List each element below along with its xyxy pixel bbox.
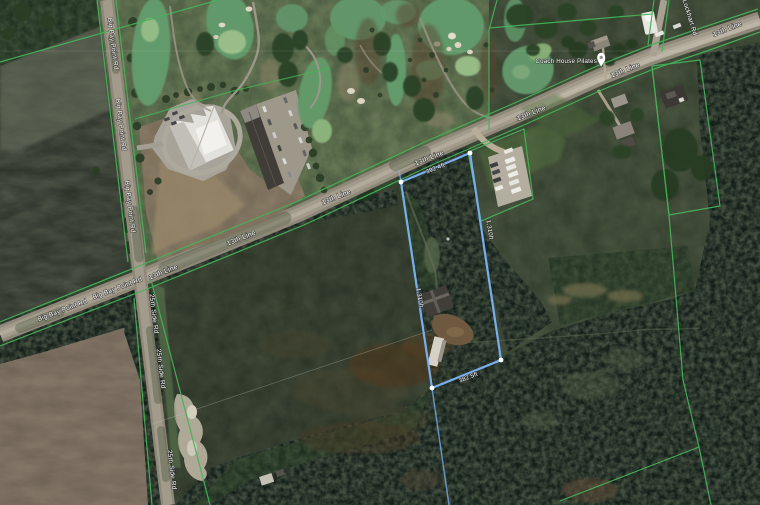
svg-text:Coach House Pilates: Coach House Pilates: [535, 58, 597, 65]
